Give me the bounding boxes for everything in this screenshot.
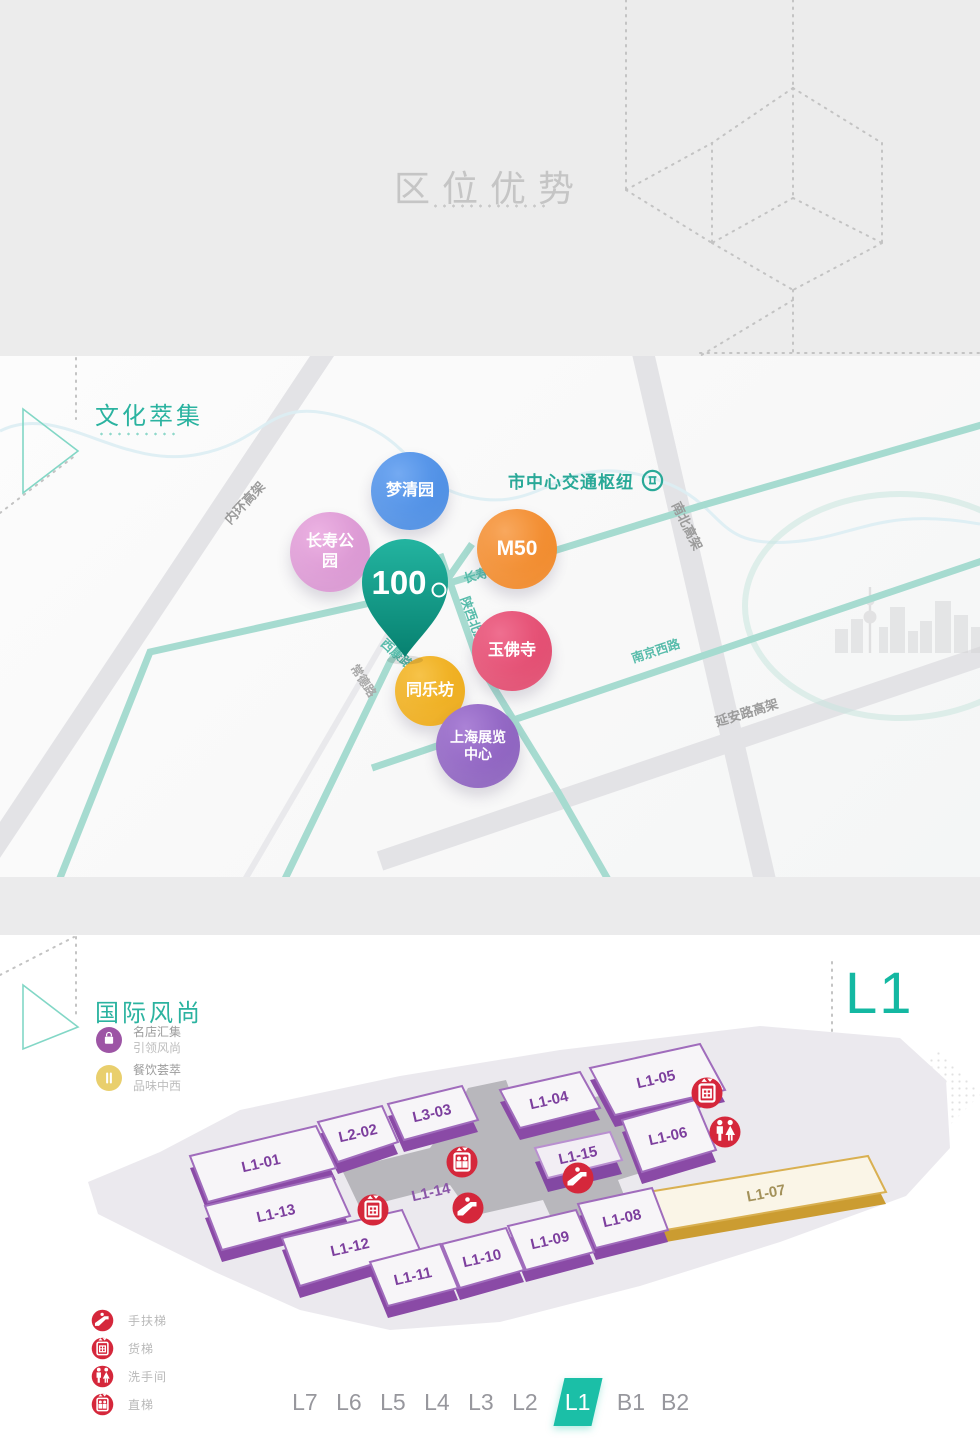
poi-bubble-m50: M50 [477, 509, 557, 589]
transit-hub: 市中心交通枢纽 [508, 468, 664, 493]
escalator-icon [91, 1309, 114, 1332]
freight-elevator-icon [692, 1078, 723, 1109]
poi-bubble-mengqingyuan: 梦清园 [371, 452, 449, 530]
poi-bubble-yufo-temple: 玉佛寺 [472, 611, 552, 691]
pin-logo-label: 100 [371, 564, 426, 601]
elevator-icon [447, 1147, 478, 1178]
railway-station-icon [641, 469, 664, 492]
floor-plan-section: 国际风尚 L1 名店汇集 引领风尚 餐饮荟萃 品味中西 [0, 935, 980, 1456]
floor-nav-item-l6[interactable]: L6 [335, 1389, 363, 1416]
transit-hub-label: 市中心交通枢纽 [508, 468, 634, 493]
road-label: 南京西路 [630, 636, 683, 666]
title-underline-dots [431, 204, 549, 208]
escalator-icon [563, 1163, 594, 1194]
legend-escalator: 手扶梯 [91, 1309, 167, 1332]
header-section: 区位优势 [0, 0, 980, 356]
poi-label: M50 [486, 536, 548, 562]
location-map-section: 内环高架 南北高架 延安路高架 常德路 长寿路 陕西北路 西康路 南京西路 文化… [0, 356, 980, 877]
floor-nav-item-l4[interactable]: L4 [423, 1389, 451, 1416]
map-section-title: 文化萃集 [95, 396, 203, 431]
floor-nav-item-l7[interactable]: L7 [291, 1389, 319, 1416]
poi-label: 上海展览中心 [447, 729, 509, 764]
floor-nav-item-l1-active[interactable]: L1 [553, 1378, 602, 1426]
map-title-dots [97, 432, 177, 436]
legend-label: 手扶梯 [128, 1312, 167, 1329]
legend-freight-elevator: 货梯 [91, 1337, 154, 1360]
page: 区位优势 [0, 0, 980, 1456]
floor-nav-item-b2[interactable]: B2 [661, 1389, 689, 1416]
floor-nav-item-l2[interactable]: L2 [511, 1389, 539, 1416]
poi-label: 同乐坊 [399, 681, 461, 701]
floor-nav-item-l3[interactable]: L3 [467, 1389, 495, 1416]
floor-nav-active-label: L1 [565, 1389, 591, 1416]
floor-nav-item-b1[interactable]: B1 [617, 1389, 645, 1416]
road-nanbei [640, 356, 770, 877]
section-divider-band [0, 877, 980, 935]
triangle-decoration [23, 409, 78, 493]
freight-elevator-icon [358, 1195, 389, 1226]
poi-label: 玉佛寺 [481, 641, 543, 661]
freight-elevator-icon [91, 1337, 114, 1360]
floor-plan: L1-01 L2-02 L3-03 L1-04 L1-05 L1-06 L1-0… [0, 1000, 980, 1340]
floor-nav: L7 L6 L5 L4 L3 L2 L1 B1 B2 [0, 1378, 980, 1426]
restroom-icon [710, 1117, 741, 1148]
escalator-icon [453, 1193, 484, 1224]
poi-label: 梦清园 [379, 481, 441, 501]
poi-bubble-exhibition-center: 上海展览中心 [436, 704, 520, 788]
floor-nav-item-l5[interactable]: L5 [379, 1389, 407, 1416]
project-location-pin: 100 [352, 533, 458, 665]
legend-label: 货梯 [128, 1340, 154, 1357]
shanghai-skyline [835, 587, 980, 653]
